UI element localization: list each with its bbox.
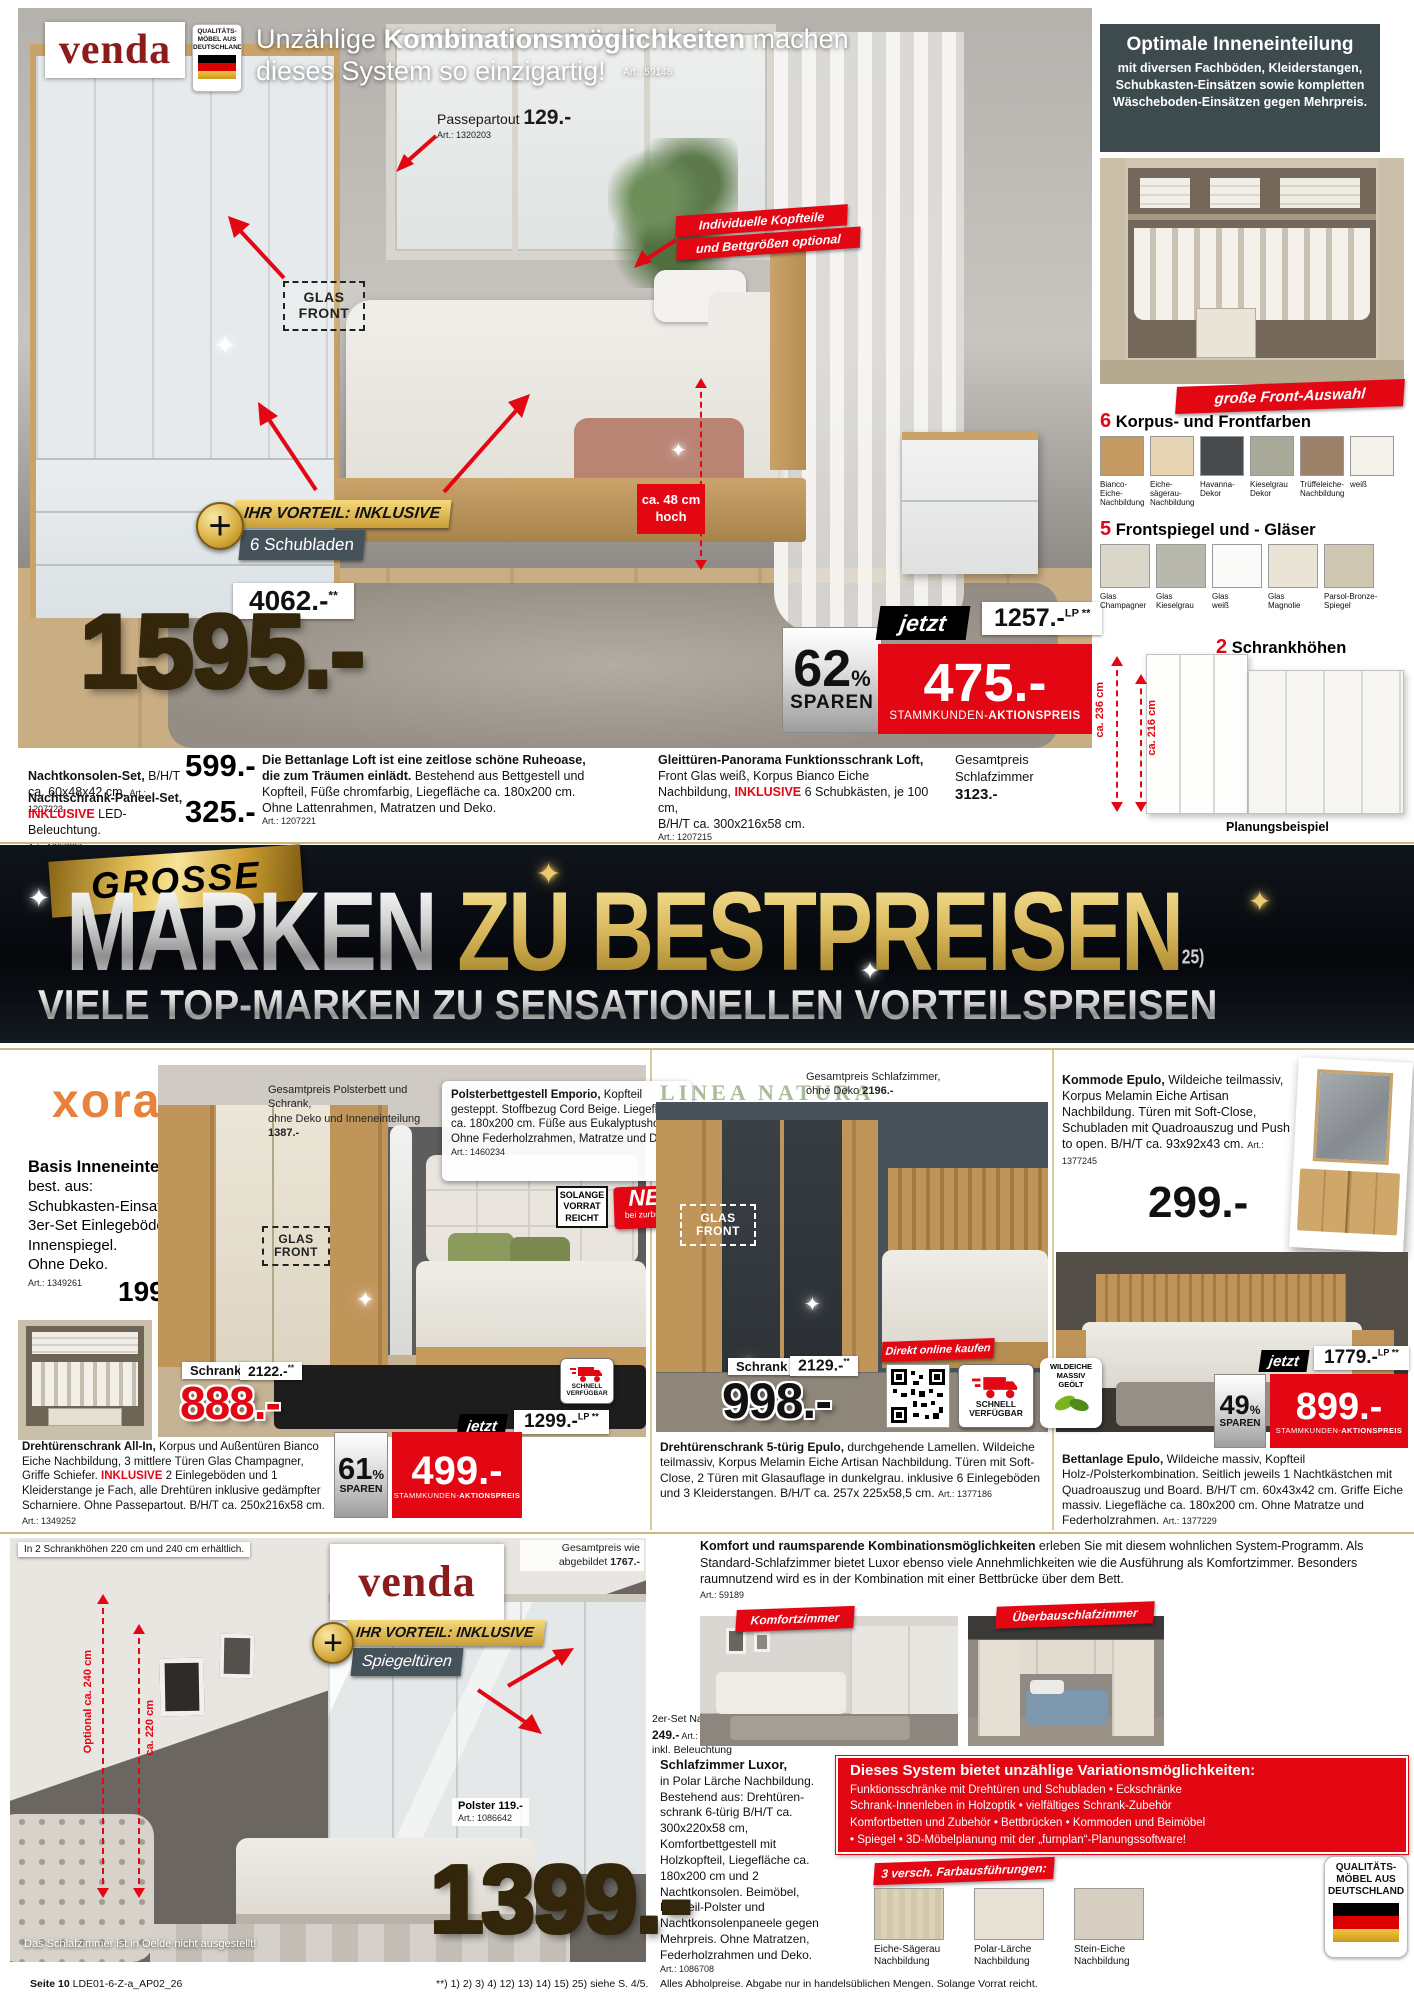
product-name: Nachtkonsolen-Set, [28, 769, 145, 783]
emporio-box: Polsterbettgestell Emporio, Kopfteil ges… [442, 1081, 692, 1181]
glass-swatch [1156, 544, 1206, 588]
xora-gesamtpreis: Gesamtpreis Polsterbett und Schrank, ohn… [268, 1083, 426, 1140]
footer-page-code: Seite 10 LDE01-6-Z-a_AP02_26 [30, 1978, 182, 1990]
color-swatch-label: Havanna- Dekor [1200, 480, 1248, 498]
color-swatch [1150, 436, 1194, 476]
marken-banner: GROSSE MARKEN ZU BESTPREISEN25) VIELE TO… [0, 845, 1414, 1043]
side-wardrobe [1112, 1640, 1154, 1736]
percent-sign: % [1250, 1403, 1261, 1417]
colors-title: 6 Korpus- und Frontfarben [1100, 410, 1311, 433]
farben-badge: 3 versch. Farbausführungen: [873, 1857, 1054, 1885]
action-price-box: 899.- STAMMKUNDEN-AKTIONSPREIS [1270, 1374, 1408, 1448]
pillow [1030, 1680, 1064, 1694]
action-label: STAMMKUNDEN- [1276, 1426, 1342, 1435]
action-label-bold: AKTIONSPREIS [459, 1491, 520, 1500]
lp-price: 1257.- [994, 604, 1065, 632]
marken-word: MARKEN [66, 869, 435, 994]
direkt-online-badge: Direkt online kaufen [881, 1338, 994, 1362]
color-swatch [1100, 436, 1144, 476]
schnell-badge: SCHNELL VERFÜGBAR [958, 1364, 1034, 1428]
shelf [1128, 214, 1376, 220]
jetzt-label: jetzt [898, 610, 948, 637]
headboard-badge: Individuelle Kopfteile und Bettgrößen op… [675, 207, 860, 257]
luxor-big-price: 1399.- [430, 1852, 690, 1948]
kommode-price: 299.- [1148, 1178, 1248, 1228]
bed-duvet [416, 1261, 646, 1357]
glass-swatch-label: Glas Kieselgrau [1156, 592, 1210, 610]
kommode-desc: Kommode Epulo, Wildeiche teilmassiv, Kor… [1062, 1072, 1300, 1168]
measure-220 [138, 1628, 140, 1894]
edition-code: LDE01-6-Z-a_AP02_26 [70, 1978, 183, 1990]
farbe-swatch [974, 1888, 1044, 1940]
quality-badge-2: QUALITÄTS- MÖBEL AUS DEUTSCHLAND [1324, 1856, 1408, 1958]
quality-line: QUALITÄTS- [193, 28, 241, 36]
linea-product-desc: Drehtürenschrank 5-türig Epulo, durchgeh… [660, 1440, 1042, 1501]
glass-swatch [1100, 544, 1150, 588]
lp-note: LP ** [1378, 1348, 1399, 1358]
old-price-note: ** [288, 1363, 294, 1372]
polster-price: Polster 119.- [458, 1800, 523, 1813]
glass-swatch-label: Glas weiß [1212, 592, 1266, 610]
glass-swatch-label: Glas Magnolie [1268, 592, 1322, 610]
save-badge: 61% SPAREN [334, 1432, 388, 1518]
linen-stack [1140, 178, 1190, 208]
lp-price: 1299.- [524, 1411, 578, 1432]
wardrobe-diagram-wide [1248, 670, 1404, 814]
total-price-block: Gesamtpreis Schlafzimmer 3123.- [955, 752, 1075, 804]
action-label: STAMMKUNDEN- [394, 1491, 460, 1500]
measure-240-label: Optional ca. 240 cm [82, 1650, 94, 1753]
lp-price: 1779.- [1324, 1347, 1378, 1368]
color-swatch [1250, 436, 1294, 476]
emporio-name: Polsterbettgestell Emporio, [451, 1089, 601, 1101]
glass-swatch [1212, 544, 1262, 588]
banner-headline: MARKEN ZU BESTPREISEN25) [66, 867, 1204, 996]
dark-glass-door [784, 1120, 842, 1372]
hero-big-price: 1595.- [80, 600, 363, 704]
hanging-clothes [1134, 228, 1370, 320]
product-name: Drehtürenschrank All-In, [22, 1441, 156, 1453]
qr-code [886, 1364, 950, 1428]
inklusive-label: INKLUSIVE [734, 785, 801, 799]
save-badge: 62% SPAREN [782, 627, 882, 733]
total-price: 3123.- [955, 785, 1075, 804]
wardrobe-interior-photo [1100, 158, 1404, 384]
plus-icon: + [312, 1622, 354, 1664]
jetzt-badge: jetzt [876, 606, 971, 640]
xora-price-888: 888.- [180, 1376, 280, 1430]
drawer-line [36, 564, 334, 566]
gesamt-price: 1767.- [610, 1556, 640, 1568]
vorteil-dark-band: Spiegeltüren [351, 1648, 464, 1676]
variations-box: Dieses System bietet unzählige Variation… [836, 1756, 1408, 1854]
quality-line: DEUTSCHLAND [1325, 1886, 1407, 1898]
white-wardrobe [850, 1626, 958, 1714]
gesamt-price: 1387.- [268, 1127, 299, 1139]
mirror [1313, 1069, 1394, 1165]
drawer-unit [48, 1408, 122, 1426]
footer-refs: **) 1) 2) 3) 4) 12) 13) 14) 15) 25) sieh… [436, 1978, 648, 1990]
variations-body: Funktionsschränke mit Drehtüren und Schu… [850, 1782, 1205, 1849]
linea-price-998: 998.- [722, 1372, 831, 1430]
gesamt-text: Gesamtpreis Polsterbett und Schrank, ohn… [268, 1084, 420, 1125]
qr-code-icon [891, 1369, 945, 1423]
action-price-box: 475.- STAMMKUNDEN-AKTIONSPREIS [878, 644, 1092, 734]
inklusive-label: INKLUSIVE [28, 807, 95, 821]
bed [716, 1672, 846, 1714]
xora-logo: xora [52, 1078, 161, 1126]
plus-icon: + [196, 502, 244, 550]
front-auswahl-badge: große Front-Auswahl [1175, 379, 1405, 414]
product-name: Drehtürenschrank 5-türig Epulo, [660, 1440, 844, 1454]
wardrobe-diagram-tall [1146, 654, 1248, 814]
passepartout-art: Art.: 1320203 [437, 130, 571, 140]
product-name: Kommode Epulo, [1062, 1073, 1165, 1087]
glasses-title-text: Frontspiegel und - Gläser [1111, 521, 1315, 539]
polster-art: Art.: 1086642 [458, 1813, 523, 1824]
picture-frame [159, 1658, 204, 1717]
info-body: mit diversen Fachböden, Kleiderstangen, … [1112, 60, 1368, 111]
intro-art: Art.: 59189 [700, 1590, 1410, 1602]
open-door [1378, 158, 1404, 384]
glasses-count: 5 [1100, 518, 1111, 540]
venda-logo: venda [358, 1560, 475, 1604]
action-price: 499.- [411, 1451, 502, 1491]
catalog-page: venda QUALITÄTS- MÖBEL AUS DEUTSCHLAND U… [0, 0, 1414, 2000]
product-name: Gleittüren-Panorama Funktionsschrank Lof… [658, 753, 923, 767]
bettanlage-desc: Bettanlage Epulo, Wildeiche massiv, Kopf… [1062, 1452, 1408, 1529]
gesamt-price: 2196.- [862, 1085, 893, 1097]
german-flag-icon [1333, 1903, 1399, 1942]
save-badge: 49% SPAREN [1214, 1374, 1266, 1448]
headline-post: machen [745, 24, 849, 54]
sparkle-icon [804, 1292, 821, 1317]
venda-logo: venda [59, 29, 171, 71]
product-art: Art.: 1349252 [22, 1516, 76, 1526]
glas-front-box: GLAS FRONT [680, 1204, 756, 1246]
drawer-unit [1196, 308, 1256, 358]
oelde-note: Das Schlafzimmer ist in Oelde nicht ausg… [24, 1938, 256, 1950]
quality-line: MÖBEL AUS [1325, 1874, 1407, 1886]
plus-sign: + [323, 1624, 343, 1663]
rug [730, 1716, 910, 1740]
product-art: Art.: 1086708 [660, 1964, 832, 1976]
color-swatch [1300, 436, 1344, 476]
page-number: Seite 10 [30, 1978, 70, 1990]
headline-art: Art.: 59148 [623, 67, 672, 78]
red-arrow-icon [392, 130, 442, 176]
passepartout-label: Passepartout 129.- Art.: 1320203 [437, 106, 571, 140]
truck-icon [570, 1365, 604, 1383]
nightstand-line [902, 500, 1038, 502]
save-label: SPAREN [340, 1483, 383, 1495]
quality-line: QUALITÄTS- [1325, 1862, 1407, 1874]
farbe-swatch [874, 1888, 944, 1940]
height-label-216: ca. 216 cm [1146, 700, 1158, 756]
venda-logo-box: venda [45, 22, 185, 78]
sparkle-icon [356, 1287, 374, 1313]
variations-title: Dieses System bietet unzählige Variation… [850, 1762, 1255, 1779]
quality-line: MÖBEL AUS [193, 36, 241, 44]
footer-legal: Alles Abholpreise. Abgabe nur in handels… [660, 1978, 1038, 1990]
banner-footnote: 25) [1182, 947, 1205, 969]
bed-duvet [882, 1250, 1048, 1352]
save-label: SPAREN [1220, 1418, 1261, 1429]
quality-badge: QUALITÄTS- MÖBEL AUS DEUTSCHLAND [192, 24, 242, 92]
lp-note: LP ** [578, 1412, 599, 1422]
open-door [1100, 158, 1126, 384]
emporio-art: Art.: 1460234 [451, 1147, 683, 1159]
intro-bold: Komfort und raumsparende Kombinationsmög… [700, 1539, 1035, 1553]
sparkle-icon [214, 330, 236, 361]
glass-swatch-label: Parsol-Bronze- Spiegel [1324, 592, 1382, 610]
save-percent: 49 [1220, 1390, 1250, 1420]
glas-front-box: GLAS FRONT [283, 281, 365, 331]
nightstand [902, 432, 1038, 574]
action-label-bold: AKTIONSPREIS [988, 710, 1080, 722]
komfortzimmer-photo [700, 1616, 958, 1746]
luxor-intro: Komfort und raumsparende Kombinationsmög… [700, 1538, 1410, 1601]
lp-price-box: 1299.-LP ** [514, 1410, 609, 1434]
product-gleittueren-schrank: Gleittüren-Panorama Funktionsschrank Lof… [658, 752, 930, 844]
total-line2: Schlafzimmer [955, 769, 1075, 786]
price-599: 599.- [185, 748, 256, 784]
height-note-badge: ca. 48 cm hoch [637, 484, 705, 534]
vorteil-dark-band: 6 Schubladen [238, 530, 365, 560]
german-flag-icon [198, 55, 236, 79]
save-label: SPAREN [790, 692, 874, 714]
action-price: 475.- [923, 656, 1046, 710]
jetzt-badge: jetzt [1258, 1350, 1309, 1372]
product-art: Art.: 1377186 [938, 1489, 992, 1499]
ueberbau-photo [968, 1616, 1164, 1746]
gesamtpreis-note: Gesamtpreis wie abgebildet 1767.- [520, 1540, 644, 1571]
quality-line: DEUTSCHLAND [193, 44, 241, 52]
lp-note: LP ** [1065, 608, 1090, 620]
jetzt-label: jetzt [1268, 1353, 1300, 1370]
product-art: Art.: 1207221 [262, 816, 592, 828]
vorteil-line2: 6 Schubladen [249, 535, 355, 555]
color-swatch [1200, 436, 1244, 476]
product-name: Nachtschrank-Paneel-Set, [28, 791, 182, 805]
headline-pre: Unzählige [256, 24, 384, 54]
glass-swatch [1324, 544, 1374, 588]
colors-title-text: Korpus- und Frontfarben [1111, 413, 1311, 431]
planning-caption: Planungsbeispiel [1226, 820, 1329, 834]
farbe-label: Polar-Lärche Nachbildung [974, 1944, 1064, 1967]
leaf-icon [1051, 1389, 1091, 1415]
red-arrow-icon [248, 398, 328, 496]
action-label-bold: AKTIONSPREIS [1341, 1426, 1402, 1435]
color-swatch-label: Trüffeleiche- Nachbildung [1300, 480, 1352, 498]
color-swatch-label: Kieselgrau Dekor [1250, 480, 1298, 498]
bestpreise-word: ZU BESTPREISEN [435, 869, 1181, 994]
picture-frame [220, 1634, 255, 1679]
action-price-box: 499.- STAMMKUNDEN-AKTIONSPREIS [392, 1432, 522, 1518]
action-price: 899.- [1296, 1388, 1383, 1426]
colors-count: 6 [1100, 410, 1111, 432]
gesamt-line2: abgebildet [559, 1556, 610, 1568]
wildeiche-badge: WILDEICHE MASSIV GEÖLT [1040, 1358, 1102, 1428]
total-line1: Gesamtpreis [955, 752, 1075, 769]
gesamt-line1: Gesamtpreis wie [524, 1542, 640, 1556]
measure-240 [102, 1598, 104, 1894]
vorteil-line1: IHR VORTEIL: INKLUSIVE [243, 505, 441, 523]
linen-stack [1280, 178, 1360, 208]
height-measure-216 [1140, 678, 1142, 808]
linen-stack [1210, 178, 1260, 208]
percent-sign: % [851, 666, 871, 691]
height-measure-236 [1116, 660, 1118, 808]
venda-logo-box-2: venda [330, 1544, 504, 1620]
truck-icon [972, 1374, 1020, 1400]
komfortzimmer-badge: Komfortzimmer [735, 1606, 854, 1632]
bed-headboard [770, 240, 806, 470]
headline-bold: Kombinationsmöglichkeiten [384, 24, 746, 54]
dark-glass-door [722, 1120, 780, 1372]
height-measure-line [700, 382, 702, 566]
passepartout-text: Passepartout [437, 111, 523, 127]
schnell-label: SCHNELL VERFÜGBAR [566, 1383, 607, 1397]
schnell-badge: SCHNELL VERFÜGBAR [560, 1358, 614, 1404]
vorteil-gold-band: IHR VORTEIL: INKLUSIVE [233, 500, 452, 528]
xora-interior-photo [18, 1320, 152, 1440]
schnell-label: SCHNELL VERFÜGBAR [969, 1400, 1023, 1419]
standing-mirror [390, 1125, 412, 1355]
banner-subline: VIELE TOP-MARKEN ZU SENSATIONELLEN VORTE… [38, 981, 1217, 1029]
glas-front-box: GLAS FRONT [262, 1226, 330, 1266]
sparkle-icon [670, 438, 687, 463]
linen-stack [32, 1332, 138, 1354]
sparkle-icon [28, 883, 50, 914]
paneel-price: 249.- [652, 1728, 679, 1742]
lp-price-box: 1257.-LP ** [982, 602, 1102, 635]
glasses-title: 5 Frontspiegel und - Gläser [1100, 518, 1316, 541]
polster-chip: Polster 119.- Art.: 1086642 [452, 1798, 529, 1826]
wildeiche-label: WILDEICHE MASSIV GEÖLT [1040, 1362, 1102, 1389]
red-arrow-icon [628, 232, 680, 272]
red-arrow-icon [222, 212, 292, 284]
glass-swatch [1268, 544, 1318, 588]
save-percent: 61 [338, 1451, 372, 1486]
plus-sign: + [208, 504, 231, 549]
farbe-label: Stein-Eiche Nachbildung [1074, 1944, 1164, 1967]
headline-line2: dieses System so einzigartig! [256, 56, 606, 86]
side-wardrobe [978, 1640, 1020, 1736]
passepartout-price: 129.- [523, 106, 571, 129]
xora-product-desc: Drehtürenschrank All-In, Korpus und Auße… [22, 1440, 330, 1528]
color-swatch-label: Eiche- sägerau- Nachbildung [1150, 480, 1198, 508]
red-arrow-icon [430, 388, 540, 498]
farbe-label: Eiche-Sägerau Nachbildung [874, 1944, 964, 1967]
hero-headline: Unzählige Kombinationsmöglichkeiten mach… [256, 24, 876, 88]
picture-frame [754, 1632, 770, 1652]
vorteil-line1: IHR VORTEIL: INKLUSIVE [355, 1625, 534, 1641]
blue-bed [1026, 1690, 1108, 1726]
red-arrow-icon [470, 1680, 550, 1740]
hanging-clothes [32, 1362, 138, 1406]
measure-220-label: ca. 220 cm [144, 1700, 156, 1756]
color-swatch-label: weiß [1350, 480, 1398, 489]
vorteil-line2: Spiegeltüren [361, 1653, 453, 1671]
info-title: Optimale Inneneinteilung [1112, 34, 1368, 56]
save-percent: 62 [793, 640, 851, 698]
price-325: 325.- [185, 794, 256, 830]
glass-swatch-label: Glas Champagner [1100, 592, 1154, 610]
percent-sign: % [372, 1467, 384, 1482]
color-swatch-label: Bianco- Eiche- Nachbildung [1100, 480, 1148, 508]
color-swatch [1350, 436, 1394, 476]
lp-price-box: 1779.-LP ** [1314, 1346, 1409, 1370]
product-name: Bettanlage Epulo, [1062, 1452, 1163, 1466]
schrankhoehen-note: In 2 Schrankhöhen 220 cm und 240 cm erhä… [18, 1542, 250, 1557]
inklusive-label: INKLUSIVE [101, 1470, 162, 1482]
old-price-note: ** [843, 1357, 849, 1366]
linea-gesamtpreis: Gesamtpreis Schlafzimmer, ohne Deko 2196… [806, 1070, 956, 1099]
product-name: Schlafzimmer Luxor, [660, 1757, 787, 1772]
action-label: STAMMKUNDEN- [889, 710, 988, 722]
sparkle-icon [1248, 885, 1271, 918]
farbe-swatch [1074, 1888, 1144, 1940]
solange-badge: SOLANGE VORRAT REICHT [556, 1186, 608, 1228]
kommode-photo [1289, 1057, 1413, 1253]
height-label-236: ca. 236 cm [1094, 682, 1106, 738]
product-bettanlage-loft: Die Bettanlage Loft ist eine zeitlose sc… [262, 752, 592, 828]
product-art: Art.: 1377229 [1163, 1516, 1217, 1526]
info-box: Optimale Inneneinteilung mit diversen Fa… [1100, 24, 1380, 152]
